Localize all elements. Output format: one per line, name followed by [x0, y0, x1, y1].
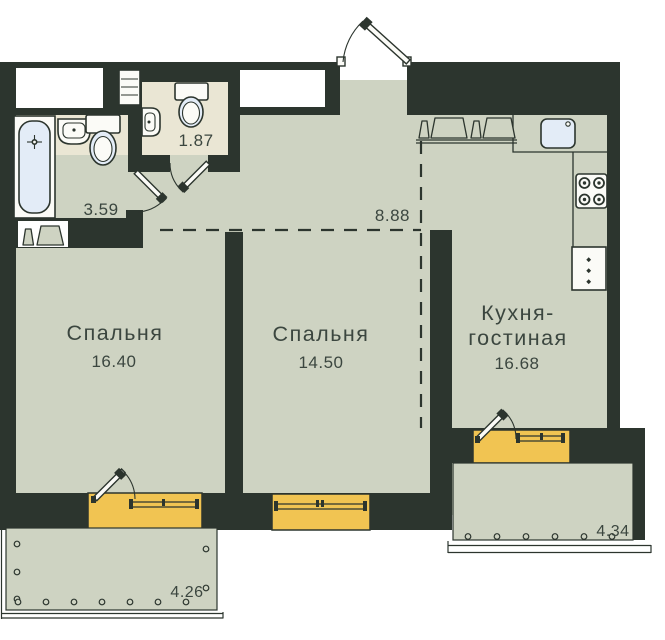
washing-machine-icon: [23, 226, 64, 245]
kitchen-living-area: 16.68: [494, 354, 539, 373]
fridge-icon: [572, 247, 606, 290]
water-heater-shelf-icon: [119, 70, 140, 105]
balcony-right: 4.34: [448, 463, 651, 553]
bedroom-left-label: Спальня: [67, 321, 164, 345]
kitchen-living-label-line1: Кухня-: [481, 301, 555, 325]
bathroom-area: 3.59: [83, 200, 118, 219]
stove-icon: [576, 174, 607, 208]
entrance-opening: [340, 62, 407, 80]
hallway-area: 8.88: [375, 206, 410, 225]
balcony-left-area: 4.26: [170, 584, 203, 601]
wall-niche-middle: [237, 70, 325, 107]
bedroom-middle-area: 14.50: [298, 353, 343, 372]
wc-area: 1.87: [178, 131, 213, 150]
vestibule-floor: [340, 80, 407, 115]
bedroom-left-balcony-block: [88, 493, 202, 529]
bedroom-middle-window-block: [272, 494, 370, 530]
kitchen-balcony-block: [473, 430, 570, 463]
balcony-left: 4.26: [2, 526, 224, 619]
wall-niche-left: [12, 68, 103, 108]
bedroom-middle-label: Спальня: [273, 322, 370, 346]
bath-faucet-icon: [32, 140, 36, 144]
kitchen-living-label-line2: гостиная: [468, 326, 567, 350]
balcony-right-area: 4.34: [596, 523, 629, 540]
floor-plan: 4.26 4.34 Спальня 16.40 Спальня 14.50 Ку…: [0, 0, 665, 640]
bedroom-left-area: 16.40: [91, 352, 136, 371]
